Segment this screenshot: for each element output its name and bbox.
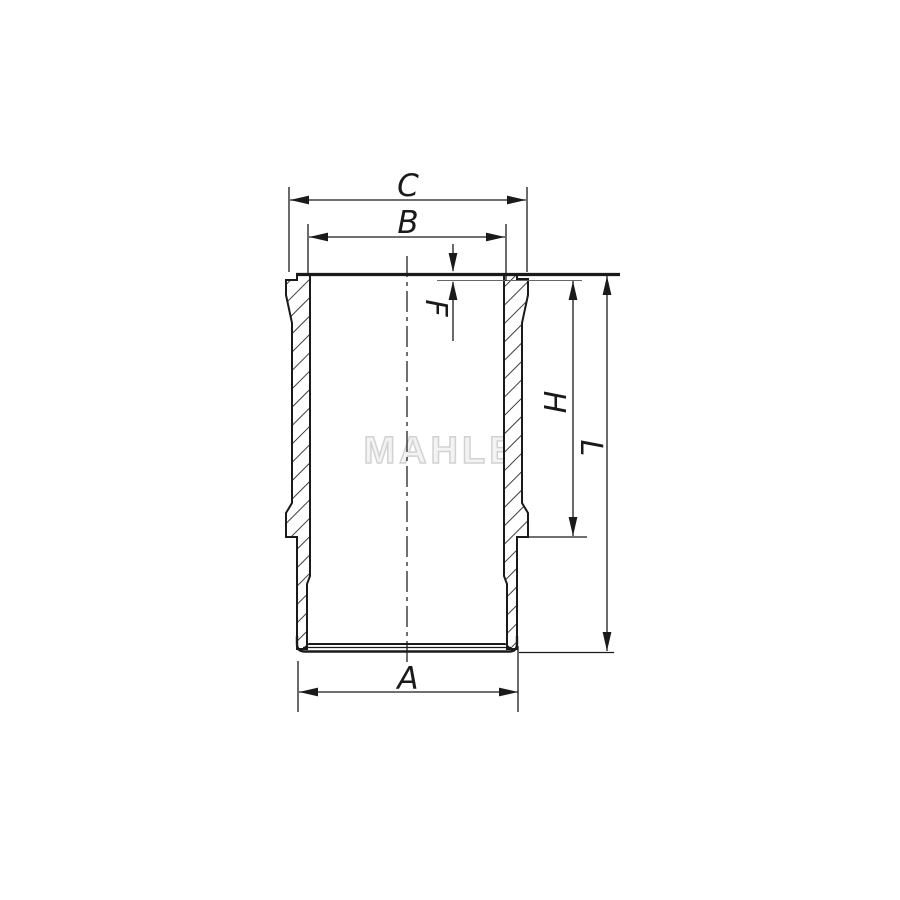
arrowhead-right bbox=[507, 196, 526, 205]
dimension-label-c: C bbox=[397, 168, 419, 204]
arrowhead-down bbox=[449, 253, 458, 272]
arrowhead-left bbox=[299, 688, 318, 697]
arrowhead-left bbox=[290, 196, 309, 205]
watermark-text: MAHLE bbox=[363, 430, 518, 472]
left-wall-section bbox=[286, 274, 310, 649]
dimension-label-b: B bbox=[397, 205, 418, 241]
arrowhead-right bbox=[486, 233, 505, 242]
watermark: MAHLE bbox=[363, 430, 518, 472]
technical-drawing-page: MAHLE C B bbox=[0, 0, 900, 900]
dimension-l: L bbox=[519, 276, 614, 653]
dimension-label-f: F bbox=[418, 299, 453, 317]
dimension-label-l: L bbox=[573, 440, 608, 457]
dimension-h: H bbox=[523, 281, 587, 537]
dimension-label-h: H bbox=[536, 391, 571, 414]
dimension-label-a: A bbox=[395, 661, 418, 697]
dimension-f: F bbox=[418, 244, 457, 341]
arrowhead-right bbox=[499, 688, 518, 697]
arrowhead-down bbox=[603, 632, 612, 651]
arrowhead-up bbox=[449, 281, 458, 300]
arrowhead-up bbox=[569, 281, 578, 300]
arrowhead-left bbox=[309, 233, 328, 242]
right-wall-section bbox=[504, 274, 528, 649]
dimension-a: A bbox=[298, 646, 518, 712]
arrowhead-down bbox=[569, 517, 578, 536]
arrowhead-up bbox=[603, 276, 612, 295]
cylinder-liner-diagram: MAHLE C B bbox=[0, 0, 900, 900]
